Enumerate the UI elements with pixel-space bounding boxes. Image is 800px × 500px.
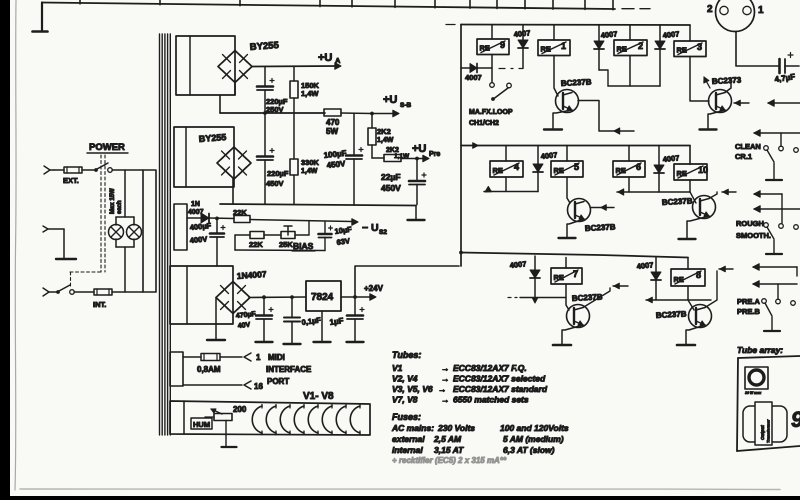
svg-text:Output: Output — [760, 425, 765, 440]
svg-text:4007: 4007 — [513, 28, 531, 39]
svg-text:4007: 4007 — [662, 29, 680, 40]
svg-text:RE: RE — [674, 275, 684, 284]
svg-text:30 W max: 30 W max — [745, 391, 762, 395]
svg-text:BC237B: BC237B — [662, 196, 693, 207]
svg-text:BY255: BY255 — [249, 40, 279, 53]
svg-text:4007: 4007 — [600, 29, 618, 40]
svg-text:4007: 4007 — [188, 209, 204, 216]
svg-text:1: 1 — [561, 41, 566, 51]
svg-text:→: → — [441, 374, 450, 384]
svg-text:22µF: 22µF — [381, 172, 401, 182]
svg-text:40V: 40V — [237, 322, 250, 330]
svg-text:9: 9 — [791, 407, 800, 432]
svg-text:+U: +U — [318, 52, 332, 64]
svg-text:S2: S2 — [379, 229, 387, 236]
svg-text:RE: RE — [677, 46, 687, 55]
svg-text:9: 9 — [500, 40, 505, 50]
svg-text:ECC83/12AX7 standard: ECC83/12AX7 standard — [453, 384, 548, 394]
svg-text:→: → — [441, 395, 450, 405]
svg-text:1N4007: 1N4007 — [236, 269, 267, 281]
svg-text:1N: 1N — [191, 201, 200, 208]
svg-text:+U: +U — [383, 94, 397, 106]
svg-text:BC237B: BC237B — [561, 77, 592, 88]
svg-text:5 AM (medium): 5 AM (medium) — [503, 434, 564, 444]
svg-text:4007: 4007 — [540, 150, 558, 161]
svg-text:BC2373: BC2373 — [712, 75, 742, 86]
svg-text:V1- V8: V1- V8 — [303, 391, 334, 402]
svg-text:RE: RE — [616, 166, 626, 175]
svg-text:6,3 AT (slow): 6,3 AT (slow) — [503, 445, 555, 455]
svg-text:250V: 250V — [266, 105, 284, 114]
svg-text:470: 470 — [326, 118, 340, 127]
svg-text:3,15 AT: 3,15 AT — [434, 445, 464, 455]
svg-text:PRE.A: PRE.A — [737, 297, 761, 306]
svg-text:5W: 5W — [326, 127, 338, 136]
svg-text:2,5 AM: 2,5 AM — [433, 434, 462, 444]
svg-text:6: 6 — [636, 162, 641, 172]
svg-text:22K: 22K — [233, 208, 247, 217]
svg-text:ECC83/12AX7 F.Q.: ECC83/12AX7 F.Q. — [453, 363, 527, 373]
svg-text:2K2: 2K2 — [377, 127, 391, 136]
svg-text:1,4W: 1,4W — [377, 137, 394, 144]
svg-text:INT.: INT. — [93, 300, 106, 309]
svg-text:RE: RE — [617, 45, 627, 54]
svg-text:RE: RE — [493, 166, 503, 175]
svg-text:EXT.: EXT. — [63, 176, 79, 185]
svg-text:PRE.B: PRE.B — [737, 307, 761, 316]
svg-text:450V: 450V — [381, 183, 401, 193]
svg-text:SMOOTH.: SMOOTH. — [736, 231, 771, 240]
svg-text:POWER: POWER — [89, 142, 125, 153]
svg-text:RE: RE — [480, 44, 490, 53]
svg-text:BC237B: BC237B — [656, 309, 687, 320]
svg-text:4007: 4007 — [465, 73, 482, 82]
svg-text:CLEAN: CLEAN — [735, 142, 761, 151]
svg-text:ECC83/12AX7 selected: ECC83/12AX7 selected — [453, 374, 546, 384]
svg-text:+24V: +24V — [364, 284, 384, 293]
svg-text:400V: 400V — [189, 234, 207, 244]
svg-text:1,4W: 1,4W — [301, 89, 319, 98]
svg-text:HUM: HUM — [193, 420, 210, 429]
svg-text:1: 1 — [758, 5, 764, 16]
svg-text:Tubes:: Tubes: — [392, 350, 421, 360]
svg-text:8: 8 — [696, 270, 701, 280]
svg-text:RE: RE — [541, 45, 551, 54]
svg-text:400µF: 400µF — [189, 221, 212, 232]
svg-text:+ recktifier (EC5) 2 x 315 mA: + recktifier (EC5) 2 x 315 mA** — [392, 456, 507, 465]
svg-text:internal: internal — [392, 445, 423, 455]
svg-text:Fuses:: Fuses: — [392, 412, 421, 422]
svg-text:22K: 22K — [249, 240, 263, 249]
svg-text:Tube array:: Tube array: — [737, 345, 783, 355]
svg-text:RE: RE — [554, 273, 564, 282]
svg-text:BY255: BY255 — [198, 132, 226, 144]
svg-text:− U: − U — [362, 222, 379, 234]
svg-text:→: → — [438, 384, 447, 394]
svg-text:100 and 120Volts: 100 and 120Volts — [500, 423, 569, 433]
svg-text:4007: 4007 — [636, 260, 654, 271]
svg-text:+U: +U — [412, 143, 426, 155]
svg-text:RE: RE — [554, 166, 564, 175]
svg-text:V7, V8: V7, V8 — [392, 395, 418, 405]
svg-text:16: 16 — [254, 382, 263, 391]
svg-text:ROUGH: ROUGH — [736, 219, 764, 228]
svg-text:→: → — [441, 363, 450, 373]
svg-text:external: external — [392, 434, 425, 444]
svg-text:A: A — [335, 56, 341, 65]
svg-text:Transformer: Transformer — [766, 419, 771, 443]
svg-text:2: 2 — [707, 4, 713, 15]
svg-text:5: 5 — [574, 162, 579, 172]
svg-text:V1: V1 — [392, 363, 403, 373]
svg-text:Pre: Pre — [429, 151, 440, 158]
svg-text:each: each — [117, 200, 123, 214]
svg-text:1: 1 — [256, 353, 261, 362]
svg-text:BC237B: BC237B — [585, 222, 616, 233]
svg-text:2: 2 — [638, 41, 643, 51]
svg-text:V3, V5, V6: V3, V5, V6 — [392, 384, 433, 394]
svg-text:PORT: PORT — [267, 377, 289, 386]
svg-text:CH1/CH2: CH1/CH2 — [469, 120, 499, 127]
svg-text:450V: 450V — [266, 179, 284, 188]
svg-text:AC mains:: AC mains: — [391, 423, 434, 433]
svg-text:MA.FX.LOOP: MA.FX.LOOP — [469, 109, 513, 116]
svg-text:3: 3 — [697, 42, 702, 52]
svg-text:S-B: S-B — [400, 102, 412, 109]
svg-text:4: 4 — [514, 162, 519, 172]
svg-text:4007: 4007 — [509, 259, 527, 270]
svg-text:330K: 330K — [301, 158, 320, 167]
svg-text:7824: 7824 — [311, 292, 334, 303]
svg-text:7: 7 — [573, 269, 578, 279]
svg-text:MIDI: MIDI — [268, 353, 285, 362]
svg-text:25K: 25K — [279, 240, 293, 249]
svg-text:4007: 4007 — [662, 153, 680, 164]
svg-text:200: 200 — [233, 405, 247, 414]
svg-text:0,8AM: 0,8AM — [197, 365, 221, 374]
svg-text:V2, V4: V2, V4 — [392, 374, 418, 384]
svg-text:1,4W: 1,4W — [301, 168, 318, 175]
svg-text:6550 matched sets: 6550 matched sets — [453, 395, 529, 405]
svg-text:220µF: 220µF — [267, 169, 289, 178]
svg-text:230 Volts: 230 Volts — [437, 423, 475, 433]
svg-text:RE: RE — [677, 169, 687, 178]
svg-text:Max 15W: Max 15W — [110, 188, 116, 214]
svg-text:INTERFACE: INTERFACE — [266, 365, 312, 374]
svg-text:10: 10 — [698, 165, 708, 175]
svg-text:63V: 63V — [336, 236, 350, 247]
svg-text:CR.1: CR.1 — [735, 152, 752, 161]
svg-text:BIAS: BIAS — [293, 241, 314, 251]
